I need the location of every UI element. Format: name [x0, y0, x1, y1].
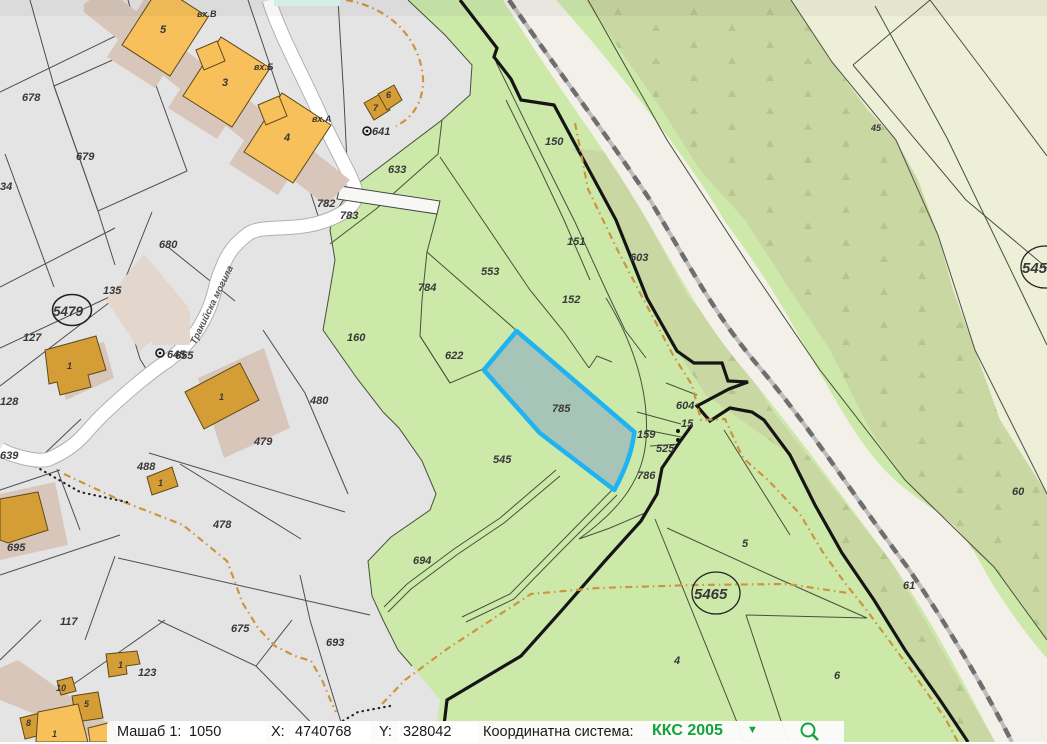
- svg-text:603: 603: [630, 252, 648, 264]
- svg-text:633: 633: [388, 164, 406, 176]
- svg-text:1: 1: [52, 729, 57, 739]
- svg-text:4: 4: [283, 132, 290, 144]
- svg-text:4: 4: [673, 655, 680, 667]
- svg-text:117: 117: [60, 616, 78, 628]
- svg-text:3: 3: [222, 77, 228, 89]
- svg-text:8: 8: [26, 718, 31, 728]
- svg-text:478: 478: [212, 519, 232, 531]
- svg-text:160: 160: [347, 332, 366, 344]
- svg-text:545: 545: [493, 454, 512, 466]
- svg-text:127: 127: [23, 332, 42, 344]
- svg-text:479: 479: [253, 436, 273, 448]
- svg-text:641: 641: [372, 126, 390, 138]
- svg-text:553: 553: [481, 266, 499, 278]
- svg-text:45: 45: [870, 123, 882, 133]
- svg-text:604: 604: [676, 400, 694, 412]
- svg-text:694: 694: [413, 555, 431, 567]
- svg-text:5: 5: [160, 24, 167, 36]
- svg-text:5465: 5465: [694, 586, 728, 603]
- svg-text:1: 1: [219, 392, 224, 402]
- svg-text:525: 525: [656, 443, 675, 455]
- svg-text:152: 152: [562, 294, 580, 306]
- svg-text:вх.А: вх.А: [312, 114, 331, 124]
- svg-text:150: 150: [545, 136, 564, 148]
- svg-text:488: 488: [136, 461, 156, 473]
- svg-text:151: 151: [567, 236, 585, 248]
- svg-text:10: 10: [56, 683, 66, 693]
- svg-text:695: 695: [7, 542, 26, 554]
- svg-text:1: 1: [67, 361, 72, 371]
- svg-text:783: 783: [340, 210, 358, 222]
- svg-text:61: 61: [903, 580, 915, 592]
- svg-text:480: 480: [309, 395, 329, 407]
- svg-text:675: 675: [231, 623, 250, 635]
- svg-text:вх.Б: вх.Б: [254, 62, 274, 72]
- svg-text:678: 678: [22, 92, 41, 104]
- svg-text:679: 679: [76, 151, 95, 163]
- svg-text:5479: 5479: [53, 304, 84, 319]
- svg-text:1: 1: [158, 478, 163, 488]
- svg-text:1: 1: [118, 660, 123, 670]
- svg-text:786: 786: [637, 470, 656, 482]
- svg-text:6: 6: [834, 670, 841, 682]
- svg-text:545: 545: [1022, 260, 1047, 277]
- svg-text:784: 784: [418, 282, 436, 294]
- svg-text:785: 785: [552, 403, 571, 415]
- svg-text:135: 135: [103, 285, 122, 297]
- svg-text:680: 680: [159, 239, 178, 251]
- svg-text:34: 34: [0, 181, 12, 193]
- svg-text:639: 639: [0, 450, 19, 462]
- svg-text:782: 782: [317, 198, 335, 210]
- svg-text:159: 159: [637, 429, 656, 441]
- svg-text:60: 60: [1012, 486, 1025, 498]
- svg-text:5: 5: [742, 538, 749, 550]
- svg-text:123: 123: [138, 667, 156, 679]
- svg-text:15: 15: [681, 418, 694, 430]
- svg-text:128: 128: [0, 396, 19, 408]
- svg-text:622: 622: [445, 350, 463, 362]
- svg-text:655: 655: [175, 350, 194, 362]
- svg-text:693: 693: [326, 637, 344, 649]
